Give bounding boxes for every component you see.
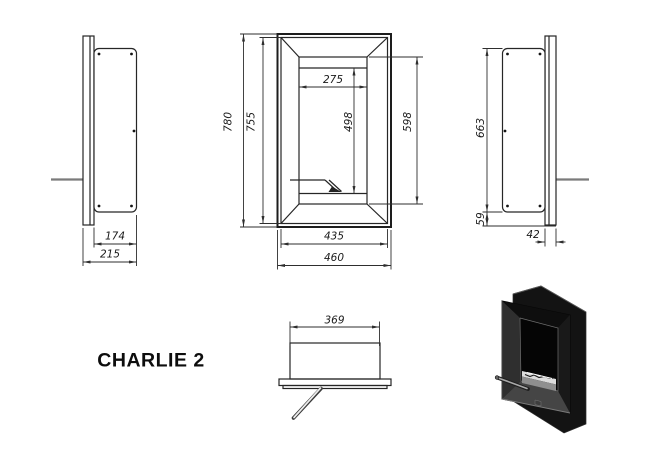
drawing-canvas: 174 215 780 755 275 [0,0,650,468]
inner-frame [281,38,388,224]
front-frame-plate [545,36,556,225]
dim-body-width-label: 369 [324,315,344,327]
casing-top-section [290,343,380,379]
left-side-view: 174 215 [51,36,137,266]
burner-rod [290,180,342,192]
control-rod [294,388,322,418]
frame-plate-section [279,379,391,386]
dim-bottom-inset-label: 59 [475,212,487,226]
dim-outer-height-label: 780 [223,112,235,132]
dim-glass-height-label: 498 [343,112,355,132]
dim-opening-width-label: 275 [323,74,343,86]
frame-lip [283,386,387,389]
dim-frame-height-label: 755 [246,112,258,132]
product-title: CHARLIE 2 [97,350,204,372]
dim-outer-width-label: 460 [324,252,344,264]
firebox-casing [503,49,546,213]
right-side-view: 663 59 42 [475,36,589,247]
dim-total-depth-label: 215 [100,249,120,261]
dim-frame-depth-label: 42 [526,229,540,241]
front-frame-plate [83,36,94,225]
outer-frame [278,34,392,227]
firebox-casing [94,49,137,213]
dim-body-depth-label: 174 [105,231,125,243]
product-render [495,286,586,433]
technical-drawing-sheet: 174 215 780 755 275 [0,0,650,468]
dim-frame-width-label: 435 [324,231,344,243]
dim-opening-height-label: 598 [402,112,414,132]
top-view: 369 [279,315,391,419]
dim-body-height-label: 663 [475,118,487,138]
front-view: 780 755 275 498 598 435 460 [223,34,424,270]
